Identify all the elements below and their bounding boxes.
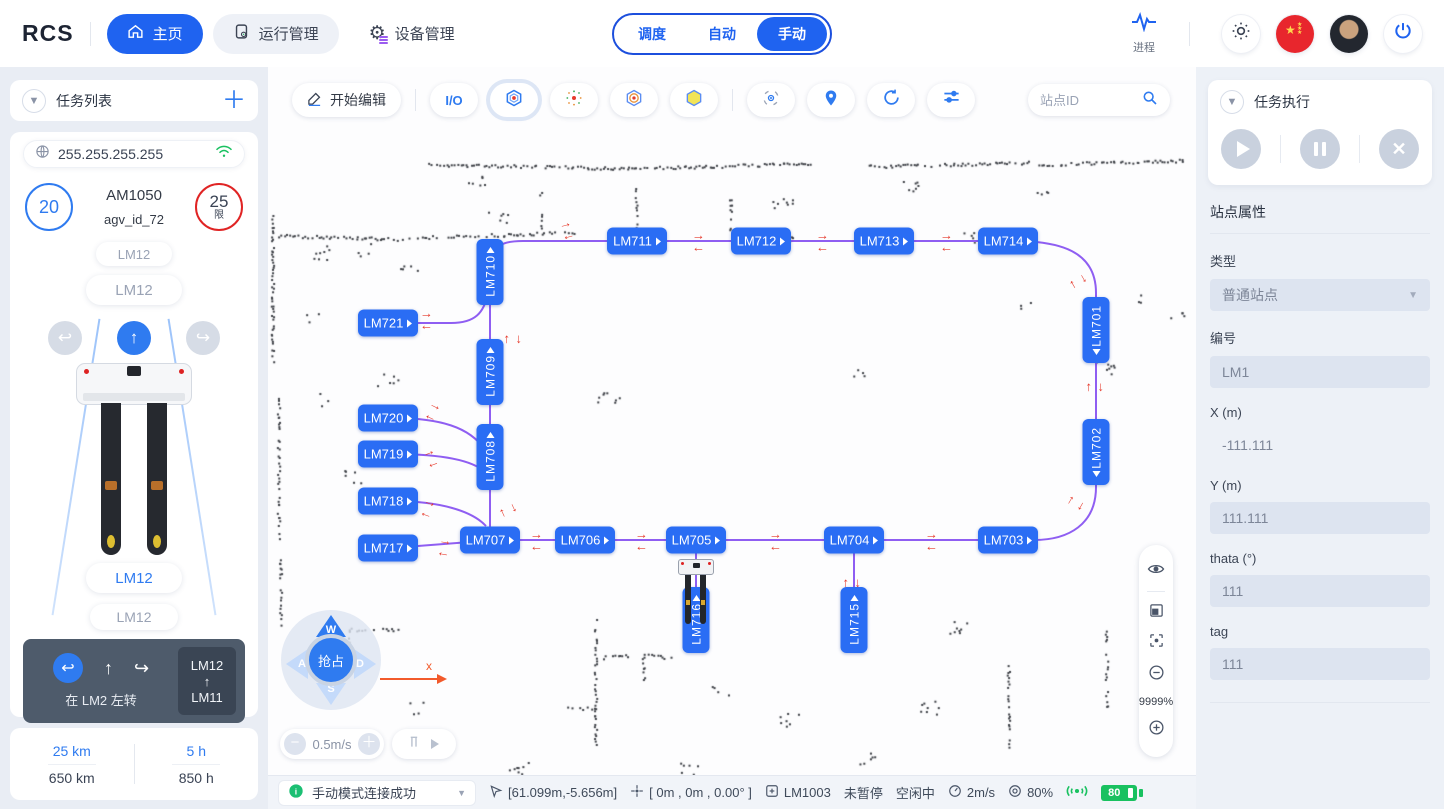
vehicle-card: 255.255.255.255 20 AM1050 agv_id_72 25 限	[10, 132, 258, 717]
speed-limit-circle: 25 限	[195, 183, 243, 231]
map-station[interactable]: LM709	[477, 339, 504, 405]
laser-points-icon	[564, 88, 584, 113]
fork-play-icon	[431, 739, 439, 749]
refresh-button[interactable]	[867, 83, 915, 117]
power-icon	[1393, 21, 1413, 46]
fork-action-button[interactable]	[392, 729, 456, 759]
eye-icon[interactable]	[1147, 562, 1165, 581]
pulse-icon	[1131, 12, 1157, 37]
map-station[interactable]: LM708	[477, 424, 504, 490]
task-list-header: ▼ 任务列表 ＋	[10, 80, 258, 121]
vehicle-ip: 255.255.255.255	[58, 146, 207, 162]
nav-turn-right-icon: ↪	[134, 658, 149, 679]
forklift-fork-left	[101, 403, 121, 555]
tag-field[interactable]: 111	[1210, 648, 1430, 680]
battery-value: 80	[1108, 787, 1120, 799]
chevron-down-icon[interactable]: ▼	[1220, 90, 1244, 114]
speed-decrease-button[interactable]: −	[284, 733, 306, 755]
total-time: 850 h	[135, 770, 259, 786]
tag-label: tag	[1210, 624, 1430, 639]
map-station[interactable]: LM720	[358, 405, 418, 432]
refresh-icon	[882, 88, 901, 112]
speed-circle: 20	[25, 183, 73, 231]
map-station[interactable]: LM717	[358, 535, 418, 562]
route-arrow-icon: ↑	[204, 674, 211, 689]
gear-icon: ⚙	[369, 24, 386, 43]
limit-value: 25	[210, 193, 229, 210]
hexagon-rings-icon	[624, 88, 644, 113]
x-axis-label: x	[426, 659, 432, 673]
task-play-button[interactable]	[1221, 129, 1261, 169]
cursor-position-value: [61.099m,-5.656m]	[508, 785, 617, 800]
focus-center-icon[interactable]	[1149, 633, 1164, 653]
direction-arrows: →←	[925, 529, 937, 552]
start-edit-button[interactable]: 开始编辑	[292, 83, 401, 117]
y-field[interactable]: 111.111	[1210, 502, 1430, 534]
status-message-dropdown[interactable]: i 手动模式连接成功 ▼	[278, 780, 476, 806]
run-state: 空闲中	[896, 783, 935, 802]
language-flag-button[interactable]: ★ ★★★	[1276, 15, 1314, 53]
nav-home[interactable]: 主页	[107, 14, 203, 54]
top-bar: RCS 主页 运行管理 ⚙ 设备管理 调度 自动 手动	[0, 0, 1444, 67]
nav-operations[interactable]: 运行管理	[213, 14, 339, 54]
station-badge-large: LM12	[86, 275, 182, 305]
radar-icon	[761, 88, 781, 113]
close-icon: ✕	[1391, 139, 1406, 160]
app-logo: RCS	[22, 20, 74, 47]
trip-time: 5 h	[172, 743, 220, 765]
forklift-fork-right	[147, 403, 167, 555]
plus-square-icon	[765, 784, 779, 801]
type-label: 类型	[1210, 251, 1430, 270]
map-station[interactable]: LM721	[358, 310, 418, 337]
pencil-icon	[307, 91, 322, 109]
chevron-down-icon[interactable]: ▼	[22, 89, 46, 113]
speed-status: 2m/s	[948, 784, 995, 801]
route-from: LM12	[191, 658, 224, 673]
code-label: 编号	[1210, 328, 1430, 347]
nav-forward-icon: ↑	[104, 658, 113, 679]
pause-state: 未暂停	[844, 783, 883, 802]
station-search	[1028, 84, 1170, 116]
direction-arrows: →←	[816, 230, 828, 253]
info-icon: i	[288, 783, 304, 802]
nav-turn-left-icon: ↩	[53, 653, 83, 683]
direction-arrows: →←	[940, 230, 952, 253]
svg-text:i: i	[295, 786, 297, 796]
direction-arrows: →←	[769, 529, 781, 552]
theta-field[interactable]: 111	[1210, 575, 1430, 607]
map-station[interactable]: LM710	[477, 239, 504, 305]
progress-status: 80%	[1008, 784, 1053, 801]
nav-devices-label: 设备管理	[395, 23, 455, 44]
mode-tab-dispatch[interactable]: 调度	[617, 17, 687, 51]
flag-star-icon: ★	[1285, 23, 1296, 37]
task-pause-button[interactable]	[1300, 129, 1340, 169]
divider	[90, 22, 91, 46]
globe-icon	[35, 144, 50, 164]
map-station[interactable]: LM719	[358, 441, 418, 468]
flag-stars-small: ★★★	[1297, 23, 1302, 35]
navigation-panel: ↩ ↑ ↪ 在 LM2 左转 LM12 ↑ LM11	[23, 639, 245, 723]
task-exec-title: 任务执行	[1254, 92, 1420, 112]
rcs-app: RCS 主页 运行管理 ⚙ 设备管理 调度 自动 手动	[0, 0, 1444, 809]
map-station[interactable]: LM714	[978, 228, 1038, 255]
joystick: W A S D 抢占	[281, 610, 381, 710]
chevron-down-icon: ▼	[457, 788, 466, 798]
total-distance: 650 km	[10, 770, 134, 786]
layer-stations-button[interactable]	[490, 83, 538, 117]
map-station[interactable]: LM718	[358, 488, 418, 515]
map-station[interactable]: LM703	[978, 527, 1038, 554]
status-message: 手动模式连接成功	[312, 783, 449, 802]
location-pin-icon	[822, 89, 840, 112]
direction-arrows: →←	[420, 308, 432, 331]
crosshair-icon	[630, 784, 644, 801]
signal-icon	[1066, 784, 1088, 801]
user-avatar[interactable]	[1330, 15, 1368, 53]
cursor-position: [61.099m,-5.656m]	[489, 784, 617, 801]
speed-status-value: 2m/s	[967, 785, 995, 800]
direction-arrows: →←	[635, 529, 647, 552]
zoom-in-icon[interactable]	[1148, 719, 1165, 741]
chevron-down-icon: ▼	[1408, 290, 1418, 301]
relocate-button[interactable]	[747, 83, 795, 117]
locate-pin-button[interactable]	[807, 83, 855, 117]
map-station[interactable]: LM711	[607, 228, 667, 255]
route-paths	[268, 67, 1196, 809]
y-label: Y (m)	[1210, 478, 1430, 493]
current-station-value: LM1003	[784, 785, 831, 800]
station-properties-title: 站点属性	[1210, 202, 1430, 222]
mode-tab-manual[interactable]: 手动	[757, 17, 827, 51]
robot-pose-value: [ 0m , 0m , 0.00° ]	[649, 785, 752, 800]
type-value: 普通站点	[1222, 285, 1278, 305]
start-edit-label: 开始编辑	[330, 90, 386, 110]
power-button[interactable]	[1384, 15, 1422, 53]
route-box: LM12 ↑ LM11	[178, 647, 236, 715]
vehicle-stats-card: 25 km 650 km 5 h 850 h	[10, 728, 258, 800]
code-field[interactable]: LM1	[1210, 356, 1430, 388]
map-station[interactable]: LM707	[460, 527, 520, 554]
sliders-icon	[942, 88, 961, 112]
route-to: LM11	[191, 690, 223, 705]
minimap-icon[interactable]	[1149, 603, 1164, 623]
x-label: X (m)	[1210, 405, 1430, 420]
navigation-hint: 在 LM2 左转	[65, 690, 137, 709]
process-button[interactable]: 进程	[1131, 12, 1157, 55]
add-task-button[interactable]: ＋	[222, 89, 246, 113]
target-icon	[1008, 784, 1022, 801]
current-station-badge: LM12	[86, 563, 182, 593]
zoom-level: 9999%	[1139, 696, 1173, 708]
map-forklift-marker[interactable]	[676, 559, 716, 631]
joystick-down-button[interactable]: S	[316, 683, 346, 705]
direction-arrows: →←	[530, 529, 542, 552]
mode-switcher: 调度 自动 手动	[612, 13, 832, 55]
nav-operations-label: 运行管理	[259, 23, 319, 44]
vehicle-agv-id: agv_id_72	[104, 212, 164, 227]
map-area[interactable]: LM710LM711LM712LM713LM714LM701LM721LM709…	[268, 67, 1196, 809]
forklift-body	[76, 363, 192, 405]
current-station: LM1003	[765, 784, 831, 801]
play-icon	[1237, 141, 1250, 157]
status-bar: i 手动模式连接成功 ▼ [61.099m,-5.656m] [ 0m , 0m…	[268, 775, 1196, 809]
direction-arrows: →←	[692, 230, 704, 253]
station-search-input[interactable]	[1040, 93, 1136, 108]
joystick-right-button[interactable]: D	[354, 649, 376, 679]
map-view-controls: 9999%	[1139, 545, 1173, 757]
sun-icon	[1231, 21, 1251, 46]
theta-label: thata (°)	[1210, 551, 1430, 566]
filter-sliders-button[interactable]	[927, 83, 975, 117]
gauge-icon	[948, 784, 962, 801]
seize-control-button[interactable]: 抢占	[305, 634, 357, 686]
nav-home-label: 主页	[153, 23, 183, 44]
nav-devices[interactable]: ⚙ 设备管理	[349, 14, 475, 54]
battery-indicator: 80	[1101, 785, 1137, 801]
trip-distance: 25 km	[48, 743, 96, 765]
search-icon[interactable]	[1142, 90, 1158, 111]
wifi-icon	[215, 145, 233, 164]
vehicle-identity: AM1050 agv_id_72	[104, 187, 164, 227]
direction-arrows: →←	[504, 333, 527, 345]
layer-points-button[interactable]	[550, 83, 598, 117]
task-cancel-button[interactable]: ✕	[1379, 129, 1419, 169]
home-icon	[127, 23, 144, 44]
monitor-icon	[233, 23, 250, 44]
turn-right-button[interactable]: ↪	[186, 321, 220, 355]
station-badge-small: LM12	[96, 242, 172, 266]
robot-pose: [ 0m , 0m , 0.00° ]	[630, 784, 752, 801]
type-select[interactable]: 普通站点 ▼	[1210, 279, 1430, 311]
pointer-icon	[489, 784, 503, 801]
next-station-badge: LM12	[90, 604, 178, 630]
speed-increase-button[interactable]: ＋	[358, 733, 380, 755]
io-button[interactable]: I/O	[430, 83, 478, 117]
station-properties-panel: 站点属性 类型 普通站点 ▼ 编号 LM1 X (m) -111.111 Y (…	[1208, 202, 1432, 703]
speed-value: 0.5m/s	[312, 737, 351, 752]
pause-icon	[1314, 142, 1326, 156]
fork-icon	[409, 735, 423, 754]
layer-target-button[interactable]	[610, 83, 658, 117]
task-sidebar: ▼ 任务列表 ＋ 255.255.255.255 20	[0, 67, 268, 809]
map-station[interactable]: LM704	[824, 527, 884, 554]
zoom-out-icon[interactable]	[1148, 664, 1165, 686]
map-station[interactable]: LM701	[1083, 297, 1110, 363]
map-toolbar: 开始编辑 I/O	[268, 83, 1196, 117]
direction-arrows: →←	[1086, 381, 1109, 393]
task-exec-card: ▼ 任务执行 ✕	[1208, 80, 1432, 185]
map-station[interactable]: LM702	[1083, 419, 1110, 485]
turn-left-button[interactable]: ↩	[48, 321, 82, 355]
task-exec-sidebar: ▼ 任务执行 ✕ 站点属性 类型 普通站点 ▼	[1196, 67, 1444, 809]
yellow-hexagon-icon	[684, 88, 704, 113]
map-station[interactable]: LM712	[731, 228, 791, 255]
map-station[interactable]: LM713	[854, 228, 914, 255]
forward-button[interactable]: ↑	[117, 321, 151, 355]
map-station[interactable]: LM706	[555, 527, 615, 554]
vehicle-ip-row[interactable]: 255.255.255.255	[23, 140, 245, 168]
task-list-title: 任务列表	[56, 91, 212, 111]
map-station[interactable]: LM705	[666, 527, 726, 554]
vehicle-model: AM1050	[104, 187, 164, 204]
limit-suffix: 限	[214, 211, 224, 221]
process-label: 进程	[1133, 39, 1155, 55]
layer-zone-button[interactable]	[670, 83, 718, 117]
vehicle-graphic	[23, 357, 245, 563]
x-field[interactable]: -111.111	[1210, 429, 1430, 461]
progress-status-value: 80%	[1027, 785, 1053, 800]
mode-tab-auto[interactable]: 自动	[687, 17, 757, 51]
speed-control: − 0.5m/s ＋	[280, 729, 384, 759]
map-station[interactable]: LM715	[841, 587, 868, 653]
theme-toggle-button[interactable]	[1222, 15, 1260, 53]
x-axis-arrow	[380, 678, 438, 680]
divider	[1189, 22, 1190, 46]
hexagon-dot-icon	[504, 88, 524, 113]
